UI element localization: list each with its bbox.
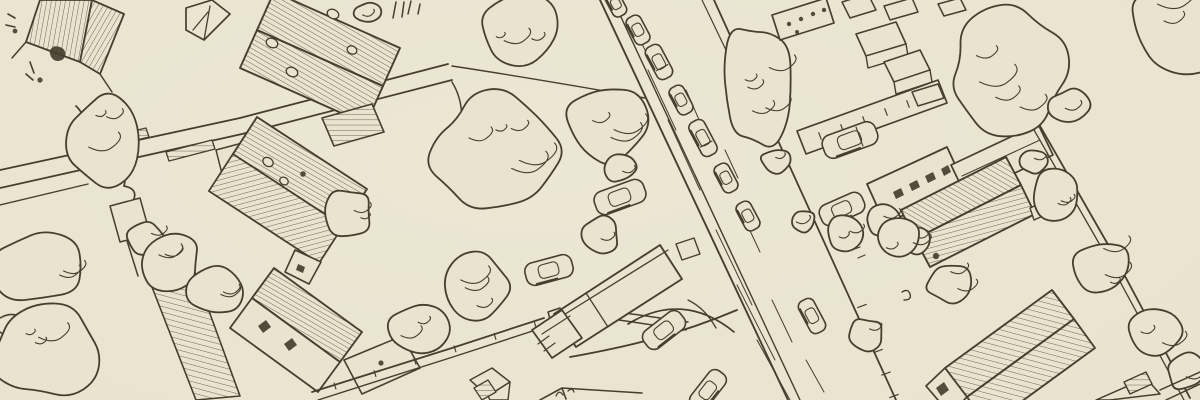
queued-car <box>624 13 652 47</box>
parked-car-yard <box>523 253 575 288</box>
building-window-dot <box>795 30 799 34</box>
poplar-tree <box>725 29 797 147</box>
fence-tree <box>1129 309 1187 356</box>
fence-tree <box>1034 169 1077 221</box>
tree-small <box>761 150 791 174</box>
sketch-canvas <box>0 0 1200 400</box>
bottom-building-edge <box>540 388 642 400</box>
scribble-bird-mark <box>6 14 34 80</box>
scene-layer <box>0 0 1200 400</box>
tree-round <box>325 191 371 237</box>
dark-speck <box>13 29 18 34</box>
garden-marks <box>852 247 865 258</box>
shed-box <box>938 0 966 16</box>
road-gate-post <box>676 238 700 260</box>
queued-car <box>667 83 695 117</box>
building-window-dot <box>799 17 803 21</box>
queued-van <box>687 117 720 159</box>
queued-car <box>712 161 740 195</box>
road-car <box>796 296 828 336</box>
garden-shrub <box>849 319 882 351</box>
tree <box>566 89 648 164</box>
extension-window <box>378 360 383 365</box>
shed-box <box>884 0 918 20</box>
tree <box>482 0 557 66</box>
tree-small <box>792 211 814 232</box>
garden-wall-hatched <box>166 140 215 161</box>
tree-large <box>428 89 561 208</box>
building-window-dot <box>822 8 826 12</box>
hedge <box>828 215 864 251</box>
small-bush-top <box>354 3 382 22</box>
plant-trunks <box>393 1 420 18</box>
tree <box>0 232 86 300</box>
parked-car-yard <box>591 177 648 217</box>
dark-speck <box>37 77 42 82</box>
corner-tree <box>1133 0 1200 74</box>
tree-small <box>604 154 636 181</box>
aerial-village-sketch <box>0 0 1200 400</box>
dark-door <box>933 253 939 259</box>
building-window-dot <box>811 12 815 16</box>
garden-s-mark <box>902 290 910 300</box>
parked-car-bottom <box>687 367 730 400</box>
building-window-dot <box>787 22 791 26</box>
tree-round <box>445 252 510 321</box>
dotted-building <box>772 0 834 40</box>
tree <box>0 303 99 395</box>
roof-vent <box>300 171 306 177</box>
fence-tree <box>1073 236 1132 293</box>
garden-shrub <box>926 263 977 303</box>
shed-box <box>842 0 876 18</box>
tree-small <box>581 215 617 253</box>
lane-wall-stub <box>0 184 88 205</box>
queued-car <box>734 199 762 233</box>
